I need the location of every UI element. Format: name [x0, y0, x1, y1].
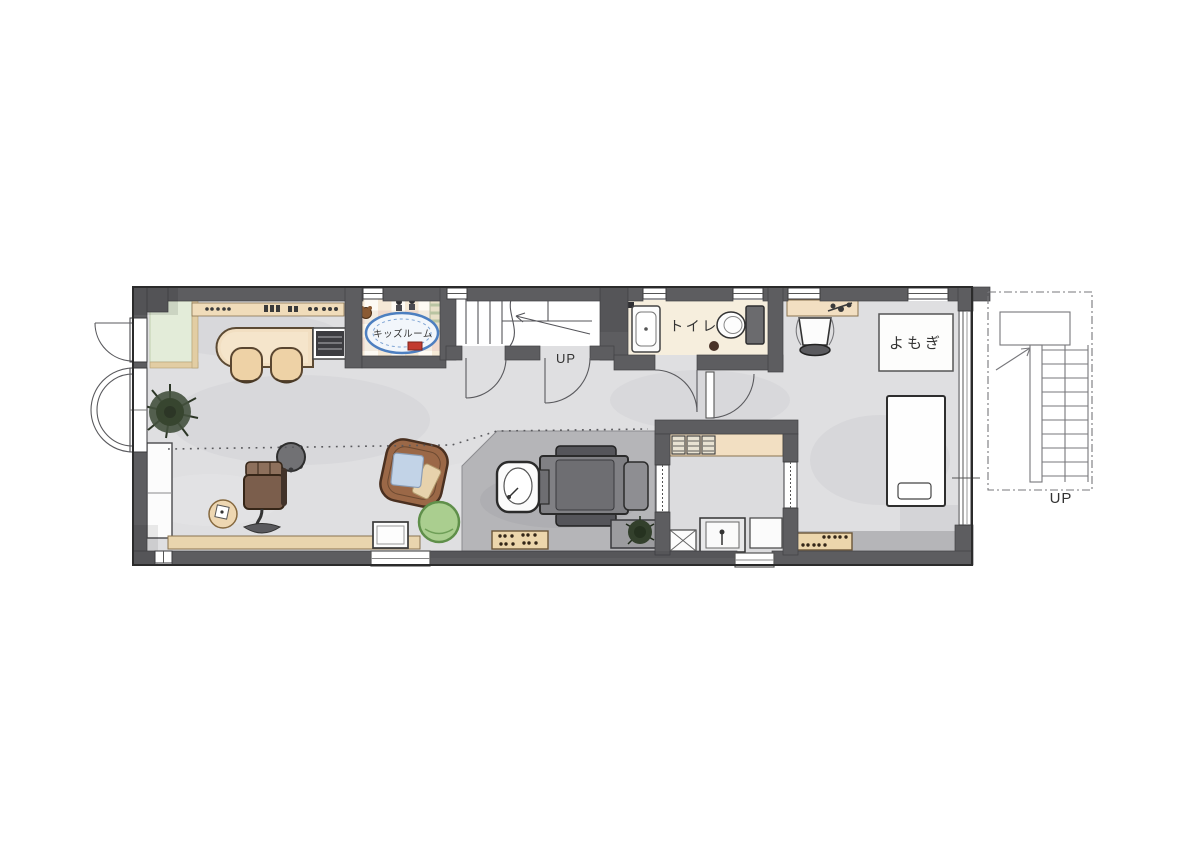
waste-bin — [709, 341, 719, 351]
arched-entrance — [91, 368, 133, 452]
floor-sofa — [377, 436, 451, 510]
kitchen-wall-shelf — [192, 303, 344, 316]
storage-baskets — [672, 436, 715, 454]
massage-bed — [887, 396, 945, 506]
window — [656, 465, 669, 512]
step-box — [373, 522, 408, 548]
pouf-ottoman — [419, 502, 459, 542]
window — [643, 288, 666, 299]
shoe-mat — [492, 531, 548, 549]
kitchen-appliance-niche — [313, 328, 347, 359]
entry-door — [95, 323, 133, 361]
interior-staircase — [454, 297, 600, 346]
window — [155, 551, 172, 563]
shoe-mat — [795, 533, 852, 550]
kids-room — [360, 297, 443, 356]
counter-stool — [271, 348, 302, 383]
window — [447, 288, 467, 299]
small-round-table — [209, 500, 237, 528]
window — [908, 288, 948, 299]
planter-box — [611, 516, 658, 548]
utility-box — [750, 518, 782, 548]
exterior-staircase — [988, 292, 1092, 490]
exterior-stairs-up-label: UP — [1050, 490, 1073, 507]
washer-pan — [670, 530, 696, 551]
steam-chair — [796, 318, 834, 356]
toy-block — [408, 342, 422, 350]
vanity-sink — [700, 518, 745, 552]
porch-step — [371, 551, 430, 566]
floor-plan-drawing: キッズルーム UP トイレ よもぎ UP — [0, 0, 1200, 849]
window — [363, 288, 383, 299]
counter-stool — [231, 348, 262, 383]
interior-stairs-up-label: UP — [556, 351, 576, 366]
shampoo-bowl — [497, 462, 539, 512]
kids-room-label: キッズルーム — [373, 328, 433, 340]
utility-room — [670, 434, 783, 555]
window-bench — [147, 443, 172, 538]
floor-plan-page: キッズルーム UP トイレ よもぎ UP — [0, 0, 1200, 849]
toilet-sink — [632, 306, 660, 352]
yomogi-sign-label: よもぎ — [889, 335, 943, 352]
steam-counter — [787, 300, 858, 316]
window — [784, 462, 797, 508]
window — [733, 288, 763, 299]
window — [788, 288, 820, 299]
toilet-label: トイレ — [669, 318, 719, 334]
